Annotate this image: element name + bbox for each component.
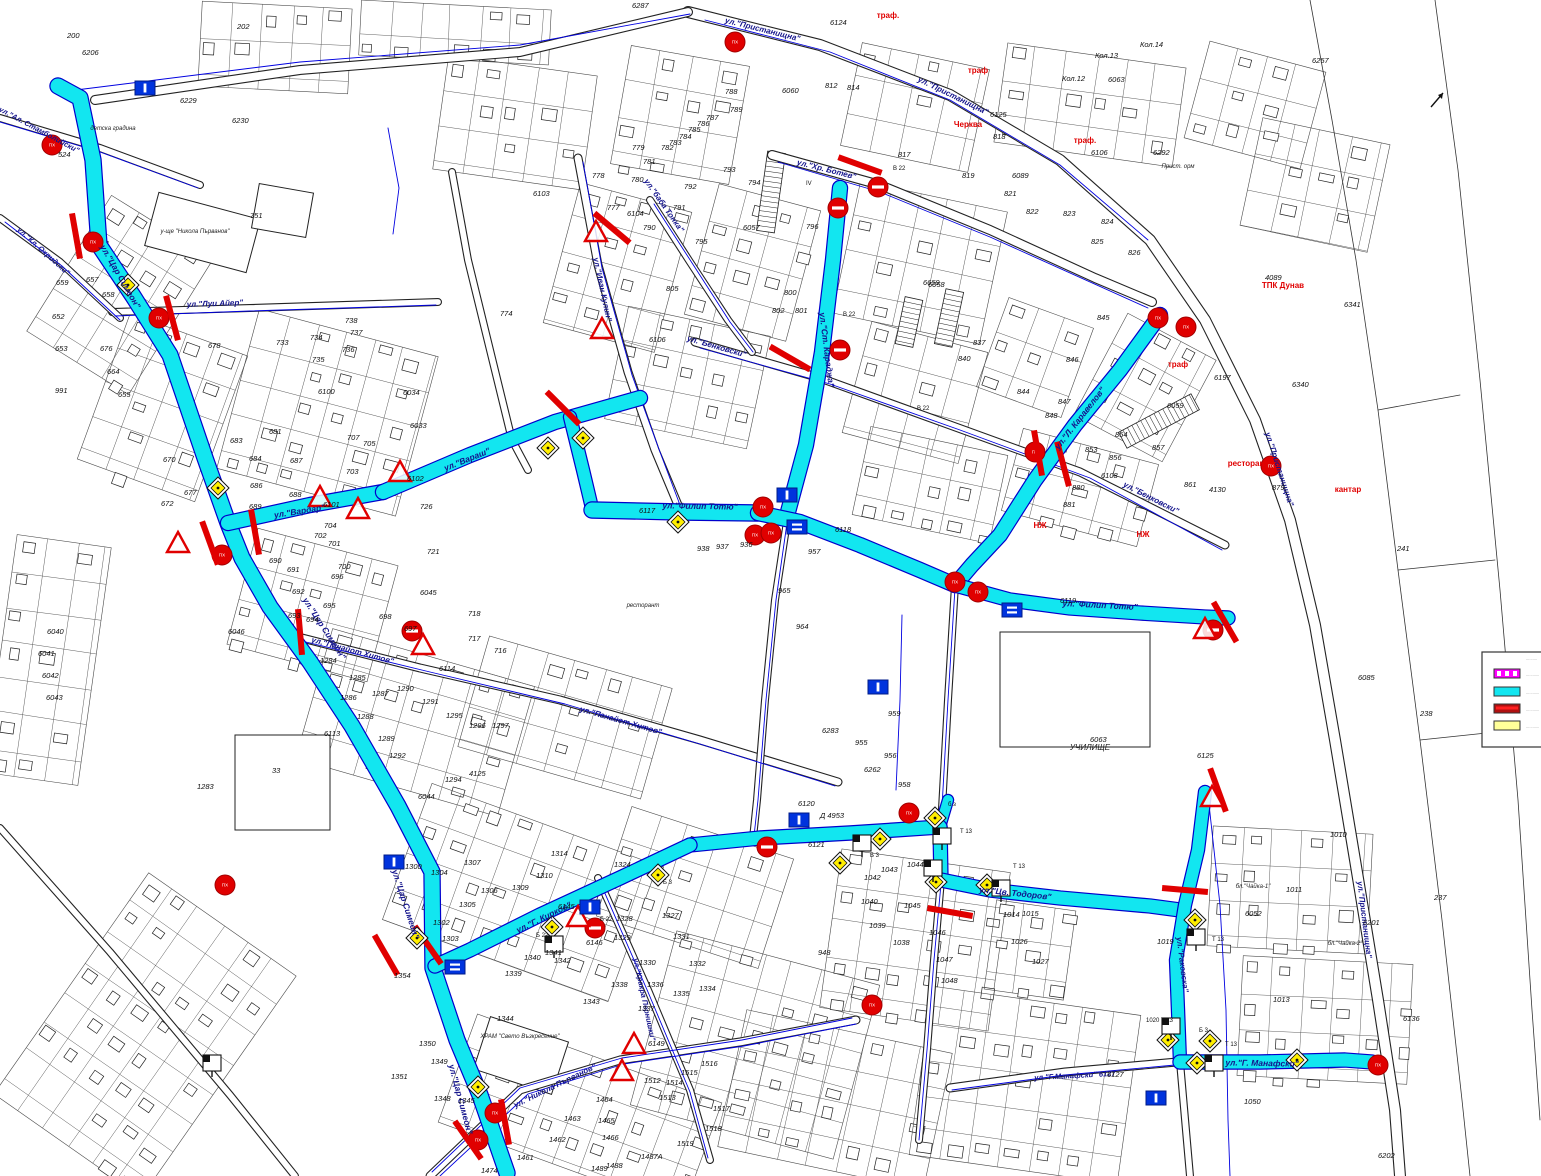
parcel-number: 6292 [1153, 148, 1171, 157]
parcel-number: 6117 [639, 506, 656, 515]
parcel-number: 848 [1045, 411, 1058, 420]
svg-text:ПХ: ПХ [90, 240, 96, 245]
parcel-number: 691 [287, 565, 300, 574]
parcel-number: 796 [806, 222, 819, 231]
hydrant-icon: ПХ [899, 803, 919, 823]
stall-row [895, 297, 923, 348]
parcel-number: 652 [52, 312, 65, 321]
parcel-number: 6045 [420, 588, 438, 597]
poi-label-red: траф. [1074, 136, 1096, 145]
parcel-number: 6230 [232, 116, 250, 125]
parcel-number: 936 [740, 540, 753, 549]
parcel-number: 824 [1101, 217, 1114, 226]
parcel-number: 690 [269, 556, 282, 565]
svg-text:ПХ: ПХ [906, 811, 912, 816]
parcel-number: 6206 [82, 48, 100, 57]
parcel-number: 793 [723, 165, 736, 174]
parcel-number: 697 [404, 624, 417, 633]
street-label: ул."Г. Манафски" [1224, 1057, 1299, 1068]
aux-label: б.з [948, 802, 956, 808]
legend-label: ............ [1526, 690, 1539, 695]
parcel-number: 937 [716, 542, 729, 551]
parcel-number: 6229 [180, 96, 198, 105]
parcel-number: 658 [102, 290, 115, 299]
svg-text:ПХ: ПХ [1155, 316, 1161, 321]
poi-label-red: ресторант [1228, 459, 1269, 468]
parcel-number: 948 [818, 948, 831, 957]
poi-label-black: у-ще "Никола Първанов" [160, 229, 231, 235]
cyan-route-tsar-simeon [58, 86, 507, 1173]
parcel-number: 6113 [324, 729, 341, 738]
parcel-number: 1047 [936, 955, 954, 964]
parcel-number: 1354 [394, 971, 411, 980]
parcel-number: 6100 [318, 387, 336, 396]
parcel-number: 1327 [662, 911, 680, 920]
hydrant-icon: ПХ [1368, 1055, 1388, 1075]
parcel-number: 716 [494, 646, 507, 655]
parcel-number: 881 [1063, 500, 1076, 509]
parcel-number: 1296 [469, 721, 487, 730]
svg-text:ПХ: ПХ [1183, 325, 1189, 330]
parcel-number: 689 [249, 502, 262, 511]
parcel-number: 1050 [1244, 1097, 1262, 1106]
poi-label-black: бл."Чайка-1" [1236, 883, 1272, 890]
parcel-number: 957 [808, 547, 821, 556]
svg-text:ПХ: ПХ [975, 590, 981, 595]
parcel-block [433, 55, 598, 190]
parcel-number: 6262 [864, 765, 882, 774]
parcel-number: 6121 [808, 840, 825, 849]
parcel-block [819, 849, 1011, 1037]
legend-label: ............ [1526, 672, 1539, 677]
parcel-number: 1466 [602, 1133, 620, 1142]
parcel-number: 1515 [681, 1068, 699, 1077]
parcel-number: 1331 [673, 932, 690, 941]
parcel-number: 825 [1091, 237, 1104, 246]
parcel-number: 965 [778, 586, 791, 595]
poi-label-black: ХРАМ "Свето Възкресение" [479, 1034, 560, 1040]
parcel-number: 676 [100, 344, 113, 353]
parcel-number: 698 [379, 612, 392, 621]
parcel-number: 6146 [586, 938, 604, 947]
hydrant-icon: ПХ [945, 572, 965, 592]
poi-label-red: траф. [877, 11, 899, 20]
aux-label: В 22 [893, 166, 906, 172]
parcel-number: 200 [66, 31, 80, 40]
parcel-number: 6120 [798, 799, 816, 808]
parcel-number: 704 [324, 521, 337, 530]
parcel-number: 6102 [407, 474, 425, 483]
parcel-number: 1349 [431, 1057, 449, 1066]
street-label: ул."Филип Тотю" [661, 500, 738, 511]
svg-text:ПХ: ПХ [869, 1003, 875, 1008]
parcel-number: 1335 [673, 989, 691, 998]
aux-label: 1020 Т 13 [1146, 1018, 1174, 1024]
aux-label: Б 22 [536, 933, 549, 939]
parcel-number: Кол.12 [1062, 74, 1086, 83]
parcel-block [0, 873, 296, 1176]
poi-label-red: Черква [954, 120, 983, 129]
parcel-number: 1314 [551, 849, 568, 858]
parcel-number: 1306 [481, 886, 499, 895]
marker-blue-icon [384, 855, 404, 869]
poi-label-red: траф [1168, 360, 1188, 369]
parcel-number: 6103 [533, 189, 551, 198]
parcel-number: 1284 [320, 656, 337, 665]
parcel-number: 1344 [497, 1014, 514, 1023]
parcel-number: 1464 [596, 1095, 613, 1104]
parcel-number: 1015 [1022, 909, 1040, 918]
legend-box [1482, 652, 1541, 747]
svg-text:ПХ: ПХ [475, 1138, 481, 1143]
aux-label: В 22 [843, 312, 856, 318]
parcel-number: 1513 [659, 1093, 677, 1102]
street-label: ул."Цар Симеон" [390, 867, 422, 940]
parcel-number: 237 [1433, 893, 1447, 902]
street-label: ул."Ал. Стамболийски" [0, 104, 81, 155]
parcel-number: 789 [730, 105, 743, 114]
parcel-number: 655 [118, 390, 131, 399]
no-entry-icon [757, 837, 777, 857]
aux-label: Т 13 [1212, 937, 1225, 943]
parcel-number: 819 [962, 171, 975, 180]
parcel-number: 6046 [228, 627, 246, 636]
parcel-number: 1351 [391, 1072, 408, 1081]
parcel-number: 840 [958, 354, 971, 363]
parcel-number: 1014 [1003, 910, 1020, 919]
svg-text:ПХ: ПХ [219, 553, 225, 558]
marker-blue-icon [1146, 1091, 1166, 1105]
stall-row [934, 289, 963, 348]
svg-text:ПХ: ПХ [156, 316, 162, 321]
aux-label: В 22 [917, 406, 930, 412]
parcel-number: 701 [328, 539, 341, 548]
marker-blue-icon [580, 900, 600, 914]
parcel-number: 1309 [512, 883, 530, 892]
marker-blue-icon [445, 960, 465, 974]
parcel-number: 1488 [606, 1161, 624, 1170]
parcel-number: 1042 [864, 873, 882, 882]
parcel-number: 1288 [357, 712, 375, 721]
poi-label-black: ресторант [626, 603, 660, 609]
parcel-number: 1330 [639, 958, 657, 967]
parcel-number: 1013 [1273, 995, 1291, 1004]
svg-text:ПХ: ПХ [1375, 1063, 1381, 1068]
parcel-number: 677 [184, 488, 197, 497]
street-rakovska-south [1180, 1062, 1190, 1176]
parcel-number: Кол.14 [1140, 40, 1163, 49]
parcel-number: 726 [420, 502, 433, 511]
parcel-number: 6106 [1091, 148, 1109, 157]
parcel-number: 693 [288, 611, 301, 620]
parcel-number: 826 [1128, 248, 1141, 257]
aux-label: Т 13 [960, 829, 973, 835]
parcel-number: 846 [1066, 355, 1079, 364]
parcel-number: 1340 [524, 953, 542, 962]
parcel-number: 853 [1085, 445, 1098, 454]
stall-row [1119, 394, 1200, 448]
parcel-number: 856 [1109, 453, 1122, 462]
hydrant-icon: ПХ [1176, 317, 1196, 337]
parcel-number: 664 [107, 367, 120, 376]
parcel-number: 695 [323, 601, 336, 610]
poi-label-black: бл."Чайка-2" [1328, 940, 1364, 947]
parcel-number: 1307 [464, 858, 482, 867]
closure-bar-icon [199, 520, 220, 565]
parcel-number: 1512 [644, 1076, 662, 1085]
parcel-number: 6058 [928, 280, 946, 289]
parcel-number: 702 [314, 531, 327, 540]
parcel-number: 733 [276, 338, 289, 347]
parcel-number: 1289 [378, 734, 396, 743]
hydrant-icon: ПХ [1148, 308, 1168, 328]
parcel-number: 1295 [446, 711, 464, 720]
parcel-number: 678 [208, 341, 221, 350]
parcel-number: 202 [236, 22, 250, 31]
aux-label: IV [806, 181, 812, 187]
closure-bar-icon [69, 213, 83, 259]
parcel-number: 707 [347, 433, 360, 442]
parcel-number: 6108 [1101, 471, 1119, 480]
parcel-number: 955 [855, 738, 868, 747]
parcel-number: 1489 [591, 1164, 609, 1173]
parcel-number: 780 [631, 175, 644, 184]
parcel-number: 751 [250, 211, 263, 220]
parcel-number: 812 [825, 81, 838, 90]
parcel-number: 817 [898, 150, 911, 159]
parcel-number: 6136 [1403, 1014, 1421, 1023]
parcel-number: 821 [1004, 189, 1017, 198]
aux-label: Б 3 [870, 853, 880, 859]
svg-text:ПХ: ПХ [952, 580, 958, 585]
parcel-number: 1461 [517, 1153, 534, 1162]
svg-text:ПХ: ПХ [49, 143, 55, 148]
parcel-number: 1294 [445, 775, 462, 784]
parcel-number: 6043 [46, 693, 64, 702]
marker-blue-icon [1002, 603, 1022, 617]
hydrant-icon: ПХ [761, 523, 781, 543]
parcel-number: 6341 [1344, 300, 1361, 309]
hydrant-box-icon [1187, 929, 1205, 951]
hydrant-box-icon [203, 1055, 221, 1077]
parcel-number: 774 [500, 309, 513, 318]
parcel-number: 1465 [598, 1116, 616, 1125]
parcel-number: 1300 [405, 862, 423, 871]
svg-text:ПХ: ПХ [752, 533, 758, 538]
hydrant-icon: ПХ [862, 995, 882, 1015]
parcel-number: 805 [666, 284, 679, 293]
parcel-number: 1463 [564, 1114, 582, 1123]
valve-diamond-icon [829, 852, 851, 874]
parcel-number: 1519 [677, 1139, 695, 1148]
parcel-number: 692 [292, 587, 305, 596]
parcel-number: 1350 [419, 1039, 437, 1048]
parcel-number: 659 [56, 278, 69, 287]
parcel-number: 1287 [372, 689, 390, 698]
parcel-number: 6033 [410, 421, 428, 430]
hydrant-icon: ПХ [149, 308, 169, 328]
parcel-number: 6119 [1060, 596, 1077, 605]
parcel-number: 721 [427, 547, 440, 556]
parcel-number: 683 [230, 436, 243, 445]
parcel-number: 6127 [1107, 1070, 1125, 1079]
parcel-block [852, 426, 1008, 544]
parcel-block [1184, 41, 1326, 169]
parcel-number: 238 [1419, 709, 1433, 718]
parcel-number: 6125 [1197, 751, 1215, 760]
parcel-number: 705 [363, 439, 376, 448]
parcel-number: 6201 [1363, 918, 1380, 927]
parcel-number: 1343 [583, 997, 601, 1006]
parcel-number: 1292 [389, 751, 407, 760]
parcel-number: 1337 [638, 1004, 656, 1013]
parcel-number: 1518 [705, 1124, 723, 1133]
parcel-number: 814 [847, 83, 860, 92]
parcel-number: 788 [725, 87, 738, 96]
parcel-number: 6089 [1012, 171, 1030, 180]
parcel-number: 1011 [1286, 885, 1302, 894]
parcel-number: 33 [272, 766, 281, 775]
parcel-number: 1329 [614, 933, 632, 942]
poi-label-black: Прист. орм [1161, 164, 1194, 170]
parcel-number: 6101 [323, 500, 340, 509]
parcel-number: 1324 [614, 860, 631, 869]
parcel-number: 6149 [648, 1039, 666, 1048]
parcel-number: 1304 [431, 868, 448, 877]
parcel-number: 938 [697, 544, 710, 553]
parcel-block [0, 535, 111, 786]
parcel-number: 790 [643, 223, 656, 232]
parcel-number: 6118 [835, 525, 852, 534]
parcel-number: 6034 [403, 388, 420, 397]
warning-triangle-icon [623, 1033, 645, 1053]
no-entry-icon [868, 177, 888, 197]
poi-label-black: УЧИЛИЩЕ [1069, 743, 1111, 752]
parcel-number: 1019 [1157, 937, 1175, 946]
parcel-number: 1305 [459, 900, 477, 909]
map-canvas: ПХПХПХПХПХПХПХПХПХПХПХПХПХПХПХПХПХПХПХПХ… [0, 0, 1541, 1176]
warning-triangle-icon [167, 532, 189, 552]
parcel-number: 1285 [349, 673, 367, 682]
field-lines [1310, 0, 1540, 1176]
parcel-block [458, 636, 672, 799]
parcel-number: 779 [632, 143, 645, 152]
parcel-number: 818 [993, 132, 1006, 141]
parcel-number: 802 [772, 306, 785, 315]
parcel-number: 737 [350, 328, 363, 337]
parcel-number: 823 [1063, 209, 1076, 218]
hydrant-icon: ПХ [753, 497, 773, 517]
aux-label: Т 13 [1225, 1042, 1238, 1048]
building [235, 735, 330, 830]
parcel-number: 1342 [554, 956, 572, 965]
parcel-number: 6257 [1312, 56, 1330, 65]
parcel-number: 1044 [907, 860, 924, 869]
parcel-number: 1339 [505, 969, 523, 978]
aux-label: Б 22 [600, 917, 613, 923]
parcel-number: 696 [331, 572, 344, 581]
parcel-number: 854 [1115, 430, 1128, 439]
street-drazki [452, 172, 528, 470]
parcel-number: 1336 [647, 980, 665, 989]
parcel-number: 1026 [1011, 937, 1029, 946]
parcel-number: 1348 [434, 1094, 452, 1103]
parcel-number: 6202 [1378, 1151, 1396, 1160]
parcel-number: 6114 [439, 664, 455, 673]
street-label: ул."Кл. Охридски" [15, 224, 73, 277]
parcel-number: 1514 [666, 1078, 683, 1087]
parcel-number: 6104 [627, 209, 644, 218]
marker-blue-icon [777, 488, 797, 502]
hydrant-icon: ПХ [968, 582, 988, 602]
street-karadzha-south [753, 515, 788, 838]
parcel-number: 1302 [433, 918, 451, 927]
legend-label: .......... [1526, 656, 1537, 661]
parcel-number: 6340 [1292, 380, 1310, 389]
parcel-number: 700 [338, 562, 351, 571]
parcel-number: 672 [161, 499, 174, 508]
poi-label-black: детска градина [90, 126, 136, 132]
parcel-number: 686 [250, 481, 263, 490]
street-label: ул."Панайот Хитов" [578, 704, 663, 736]
parcel-number: 6042 [42, 671, 60, 680]
hydrant-box-icon [1205, 1055, 1223, 1077]
poi-label-red: кантар [1335, 485, 1362, 494]
parcel-number: 794 [748, 178, 761, 187]
aux-label: Т 13 [1013, 864, 1026, 870]
parcel-number: 778 [592, 171, 605, 180]
parcel-number: 1286 [340, 693, 358, 702]
parcel-number: 792 [684, 182, 697, 191]
parcel-number: 837 [973, 338, 986, 347]
parcel-number: 735 [312, 355, 325, 364]
parcel-number: 1048 [941, 976, 959, 985]
no-entry-icon [828, 198, 848, 218]
parcel-number: 964 [796, 622, 809, 631]
poi-label-red: траф [968, 66, 988, 75]
parcel-number: 717 [468, 634, 481, 643]
parcel-number: 1310 [536, 871, 554, 880]
parcel-number: 782 [661, 143, 674, 152]
parcel-number: 1027 [1032, 957, 1050, 966]
parcel-mesh [0, 0, 1414, 1176]
parcel-number: 6085 [1358, 673, 1376, 682]
parcel-number: 1332 [689, 959, 707, 968]
parcel-number: 6124 [830, 18, 847, 27]
aux-label: Б 3 [1199, 1028, 1209, 1034]
parcel-number: 6041 [38, 649, 55, 658]
parcel-number: 1046 [929, 928, 947, 937]
parcel-number: 1045 [904, 901, 922, 910]
parcel-number: 6145 [558, 902, 576, 911]
parcel-number: 6106 [649, 335, 667, 344]
street-top-street [95, 12, 688, 100]
parcel-number: 653 [55, 344, 68, 353]
parcel-number: 6287 [632, 1, 650, 10]
parcel-number: 524 [58, 150, 71, 159]
parcel-number: 845 [1097, 313, 1110, 322]
svg-text:ПХ: ПХ [732, 40, 738, 45]
street-kobadin [0, 828, 295, 1176]
parcel-number: 1038 [893, 938, 911, 947]
parcel-number: 6057 [743, 223, 761, 232]
parcel-number: 844 [1017, 387, 1030, 396]
poi-label-red: НЖ [1033, 521, 1047, 530]
closure-bar-icon [372, 934, 400, 977]
parcel-number: 694 [306, 615, 319, 624]
parcel-number: 241 [1396, 544, 1410, 553]
svg-text:ПХ: ПХ [222, 883, 228, 888]
